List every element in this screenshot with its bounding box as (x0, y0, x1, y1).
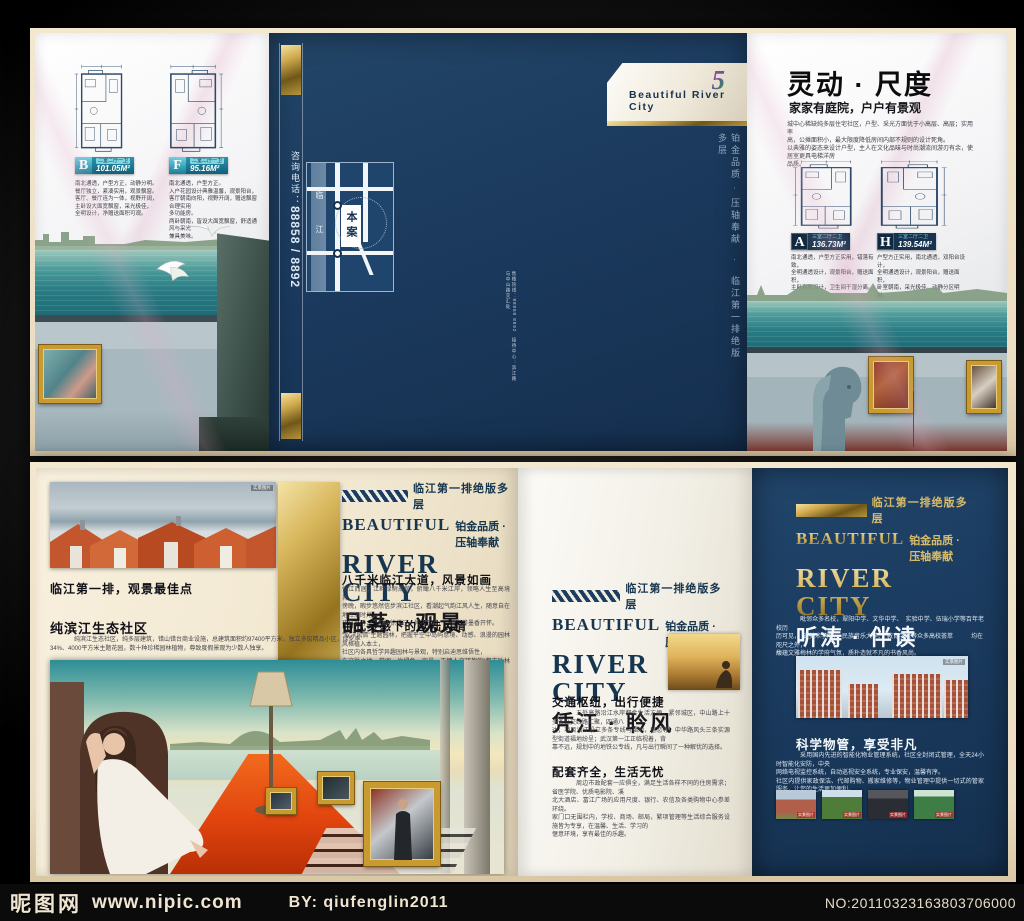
building-block (848, 684, 878, 718)
edu-paragraph: 毗邻众多名校，翠阳中学、文华中学、 实验中学、伍瑞小学等百年老校历 历可见， 省… (776, 616, 984, 659)
bottom-left-sheet: 实景图片 临江第一排，观景最佳点 纯滨江生态社区 纯滨江 (36, 468, 518, 876)
cover-tagline-vertical: 铂金品质 · 压轴奉献 · 临江第一排绝版多层 (716, 133, 742, 363)
framed-portrait (266, 788, 296, 814)
framed-painting (39, 345, 101, 403)
unit-area: 136.73M² (812, 240, 846, 249)
serial-number: NO:20110323163803706000 (825, 895, 1016, 911)
cover-title-tab: 5 Beautiful River City (607, 63, 747, 121)
gold-band (281, 45, 301, 95)
seated-woman-silhouette (710, 658, 736, 688)
terrace-step (199, 417, 269, 451)
floorplan-f-drawing (167, 63, 225, 155)
section-text: 采用国内先进的智能化物业管理系统，社区全封闭式管理，全天24小时智能化安防，中央… (776, 752, 984, 795)
phone-numbers: 88858 / 8892 (288, 206, 302, 288)
gold-band (281, 393, 301, 439)
position-tag: 临江第一排绝版多层 (872, 494, 972, 526)
rooftops-photo: 实景图片 (50, 482, 276, 568)
phone-label: 咨询电话： (290, 151, 300, 206)
roof-shapes (50, 512, 276, 568)
man-in-suit (388, 796, 418, 860)
thumb-label: 实景图片 (797, 812, 815, 818)
unit-desc-b: 南北通透，户型方正，动静分明。 餐厅独立，紧凑实用，观景飘窗。 客厅、餐厅连为一… (75, 181, 167, 219)
thumb-label: 实景图片 (843, 812, 861, 818)
map-node (333, 201, 342, 210)
unit-code: H (877, 233, 894, 250)
river-band: 临江 (311, 163, 326, 291)
section-title-eco: 纯滨江生态社区 (50, 618, 148, 637)
map-road (307, 251, 393, 255)
bottom-right-sheet: 临江第一排绝版多层 BEAUTIFUL 铂金品质 · 压轴奉献 RIVER CI… (752, 468, 1008, 876)
nipic-logo: 昵图网 (10, 888, 82, 918)
thumb-label: 实景图片 (889, 812, 907, 818)
micro-info-vertical: 售楼热线：88858 8892 接待中心：滨江路与中山路交汇处 (505, 271, 517, 387)
quality-tag: 铂金品质 · 压轴奉献 (455, 518, 512, 550)
unit-badge-f: F 二室二厅一卫 95.16M² (169, 157, 228, 174)
floorplan-a-drawing (791, 159, 855, 231)
unit-badge-b: B 二室二厅一卫 101.05M² (75, 157, 134, 174)
river-city-label: RIVER CITY (796, 564, 972, 620)
building-block (944, 680, 968, 718)
lamp-stand (913, 391, 914, 447)
cover-panel: 咨询电话：88858 / 8892 临江 本案 (269, 33, 747, 451)
unit-code: A (791, 233, 808, 250)
position-tag: 临江第一排绝版多层 (413, 480, 512, 512)
unit-badge-a: A 三室二厅二卫 136.73M² (791, 233, 850, 250)
river-label: 临江 (314, 191, 325, 259)
unit-area: 139.54M² (898, 240, 932, 249)
golden-sea-photo (668, 634, 740, 690)
quality-tag: 铂金品质 · 压轴奉献 (909, 532, 972, 564)
panel-subtitle: 家家有庭院，户户有景观 (789, 99, 921, 116)
unit-area: 95.16M² (190, 164, 224, 173)
woman-on-sofa-illustration (50, 682, 250, 874)
site-url: www.nipic.com (92, 892, 243, 914)
watermark-bar: 昵图网 www.nipic.com BY: qiufenglin2011 NO:… (0, 884, 1024, 921)
statue-illustration (791, 353, 879, 451)
top-right-floorplan-panel: 灵动 · 尺度 家家有庭院，户户有景观 城中心稀缺纯多层住宅社区，户型、采光方面… (747, 33, 1007, 451)
thumbnail-photo-buildings: 实景图片 (776, 790, 816, 819)
stripe-block (552, 590, 620, 602)
top-brochure-spread: B 二室二厅一卫 101.05M² F 二室二厅一卫 95.16M² 南北通透，… (30, 28, 1016, 456)
framed-painting (869, 357, 913, 413)
river-water (747, 301, 1007, 349)
thumb-label: 实景图片 (935, 812, 953, 818)
beautiful-label: BEAUTIFUL (342, 515, 450, 535)
unit-code: F (169, 157, 186, 174)
bottom-middle-sheet: 临江第一排绝版多层 BEAUTIFUL 铂金品质 · 压轴奉献 RIVER CI… (518, 468, 752, 876)
framed-portrait (318, 772, 354, 804)
section-text: 五处高路沿江水岸都会生活方便，紧邻城区，中山路上十多条公交线路汇聚，四通八 达，… (552, 710, 730, 753)
stripe-block (342, 490, 408, 502)
site-label: 本案 (343, 211, 359, 241)
framed-portrait-large (364, 782, 440, 866)
top-left-floorplan-panel: B 二室二厅一卫 101.05M² F 二室二厅一卫 95.16M² 南北通透，… (35, 33, 269, 451)
photo-corner-label: 实景图片 (251, 485, 273, 491)
thumbnail-photo-garden: 实景图片 (822, 790, 862, 819)
photo-corner-label: 实景图片 (943, 659, 965, 665)
thumbnail-photo-tennis: 实景图片 (914, 790, 954, 819)
unit-code: B (75, 157, 92, 174)
panel-title: 灵动 · 尺度 (787, 63, 933, 102)
interior-dream-photo (50, 660, 504, 874)
position-tag: 临江第一排绝版多层 (625, 580, 728, 612)
riverside-scene-left (35, 226, 269, 451)
building-block (892, 674, 942, 718)
section-title: 配套齐全，生活无忧 (552, 764, 665, 780)
framed-painting (967, 361, 1001, 413)
floorplan-h-drawing (877, 159, 949, 231)
gold-bar (796, 504, 867, 517)
section-text: 周边市政配套一应俱全，满足生活各样不同的住房需求；省医学院、优质电影院、溪 北大… (552, 780, 730, 840)
gallery-wall (35, 315, 269, 451)
building-block (798, 670, 842, 718)
bottom-brochure-spread: 实景图片 临江第一排，观景最佳点 纯滨江生态社区 纯滨江 (30, 462, 1016, 882)
map-road (307, 187, 393, 191)
map-node (333, 249, 342, 258)
riverside-scene-right (747, 279, 1007, 451)
spine-strip: 咨询电话：88858 / 8892 (279, 43, 303, 441)
section-title: 交通枢纽，出行便捷 (552, 694, 665, 710)
author-credit: BY: qiufenglin2011 (289, 894, 449, 912)
unit-area: 101.05M² (96, 164, 130, 173)
brand-name-en: Beautiful River City (629, 89, 747, 113)
thumbnail-photo-horses: 实景图片 (868, 790, 908, 819)
section-title: 科学物管，享受非凡 (796, 734, 918, 753)
beautiful-label: BEAUTIFUL (796, 529, 904, 549)
location-map: 临江 本案 (306, 162, 394, 292)
buildings-photo: 实景图片 (796, 656, 968, 718)
project-site-marker: 本案 (341, 205, 361, 247)
floorplan-b-drawing (73, 63, 125, 155)
photo-caption: 临江第一排，观景最佳点 (50, 580, 193, 597)
statue-gallery-wall (747, 347, 1007, 451)
beautiful-label: BEAUTIFUL (552, 615, 660, 635)
unit-badge-h: H 三室二厅二卫 139.54M² (877, 233, 936, 250)
gold-rule (607, 121, 747, 126)
